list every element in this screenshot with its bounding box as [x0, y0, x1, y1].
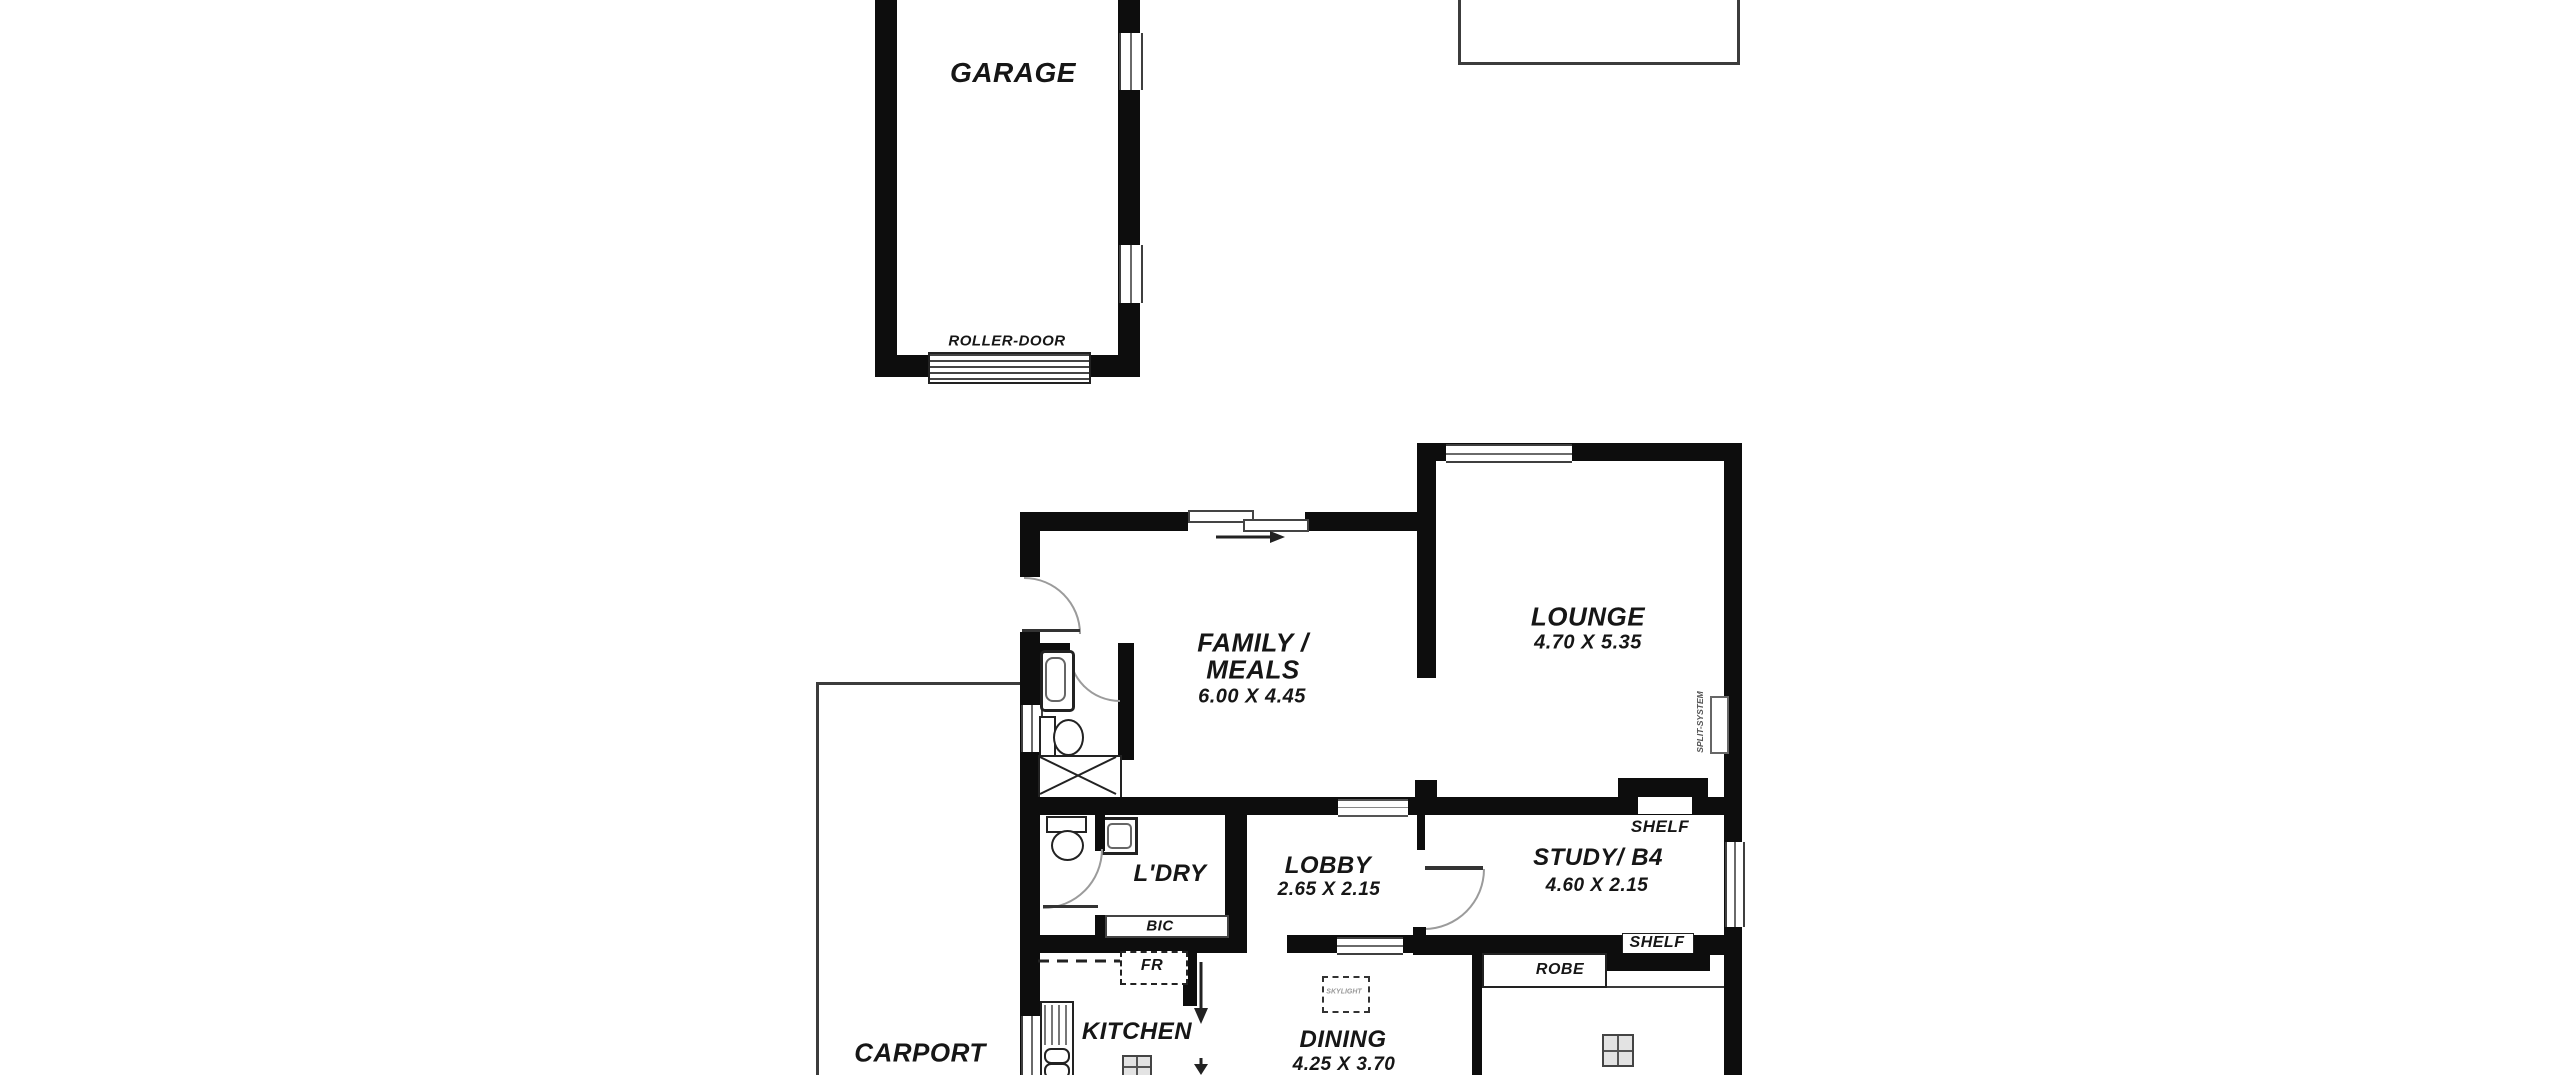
garage-window-upper — [1119, 33, 1143, 90]
family-bottom-wall — [1038, 797, 1247, 815]
study-door-leaf — [1425, 866, 1483, 870]
bic-label: BIC — [1146, 918, 1173, 935]
fridge-label: FR — [1141, 957, 1163, 975]
carport-outline — [816, 682, 1025, 1075]
carport-label: CARPORT — [854, 1038, 986, 1069]
right-wall — [1724, 443, 1742, 1075]
laundry-tub-inner — [1107, 823, 1132, 849]
floor-hatch — [1602, 1034, 1634, 1067]
shelf-top-recess — [1638, 797, 1692, 814]
study-door-jamb — [1417, 815, 1425, 850]
bathroom-door-arc — [1068, 650, 1120, 702]
lounge-window — [1446, 444, 1572, 463]
lobby-top-opening — [1338, 799, 1408, 817]
lounge-label: LOUNGE — [1531, 602, 1645, 633]
garage-window-lower — [1119, 245, 1143, 303]
roller-door — [928, 352, 1091, 384]
tub-side-stub — [1095, 815, 1105, 851]
study-door-arc — [1424, 869, 1485, 930]
family-dims: 6.00 X 4.45 — [1198, 686, 1306, 709]
lobby-label: LOBBY — [1285, 852, 1372, 880]
floor-plan-canvas: GARAGE ROLLER-DOOR CARPORT SHELF L'DRY L… — [0, 0, 2560, 1075]
cooktop — [1122, 1055, 1152, 1075]
family-top-wall-left — [1020, 512, 1188, 531]
skylight-label: SKYLIGHT — [1326, 989, 1361, 996]
roller-door-label: ROLLER-DOOR — [948, 333, 1065, 350]
lobby-dims: 2.65 X 2.15 — [1278, 879, 1381, 901]
sink-bowl-2 — [1044, 1063, 1070, 1075]
dining-top-window — [1337, 937, 1403, 955]
shelf-bottom-label: SHELF — [1630, 934, 1685, 952]
family-top-wall-right — [1305, 512, 1420, 531]
court-outline — [1458, 0, 1740, 65]
entry-door-arc — [1024, 577, 1081, 634]
bathroom-right-wall — [1118, 643, 1134, 760]
family-label-line2: MEALS — [1206, 655, 1300, 686]
dining-label: DINING — [1300, 1026, 1387, 1054]
left-wall — [1020, 632, 1040, 1075]
toilet-1-bowl — [1053, 719, 1084, 756]
study-window — [1725, 842, 1745, 927]
shelf-top-label: SHELF — [1631, 817, 1689, 837]
split-system-unit — [1710, 696, 1729, 754]
annotation-overlay — [0, 0, 2560, 1075]
sliding-door-panel-2 — [1243, 519, 1309, 532]
wall-stub-above-band — [1415, 780, 1437, 797]
bedroom-left-wall — [1472, 953, 1482, 1075]
entry-wall-stub — [1020, 512, 1040, 577]
garage-label: GARAGE — [950, 57, 1076, 89]
draining-board — [1044, 1005, 1067, 1045]
study-dims: 4.60 X 2.15 — [1546, 875, 1649, 897]
robe-bottom-line — [1607, 986, 1724, 988]
bic-left-stub — [1095, 915, 1105, 936]
family-lounge-divider-wall — [1417, 443, 1436, 678]
dining-dims: 4.25 X 3.70 — [1293, 1054, 1396, 1075]
study-label: STUDY/ B4 — [1533, 844, 1663, 872]
lounge-wall-step — [1618, 778, 1708, 797]
sink-bowl-1 — [1044, 1048, 1070, 1064]
garage-left-wall — [875, 0, 897, 377]
ldry-label: L'DRY — [1133, 860, 1206, 888]
ldry-door-arc — [1043, 849, 1103, 909]
robe-right-wall — [1607, 953, 1710, 971]
lounge-dims: 4.70 X 5.35 — [1534, 632, 1642, 655]
kitchen-label: KITCHEN — [1082, 1018, 1192, 1046]
bathtub-inner — [1045, 657, 1066, 702]
ldry-door-leaf — [1043, 905, 1098, 908]
robe-label: ROBE — [1536, 961, 1584, 979]
split-system-label: SPLIT-SYSTEM — [1695, 691, 1705, 752]
shower — [1038, 755, 1122, 800]
